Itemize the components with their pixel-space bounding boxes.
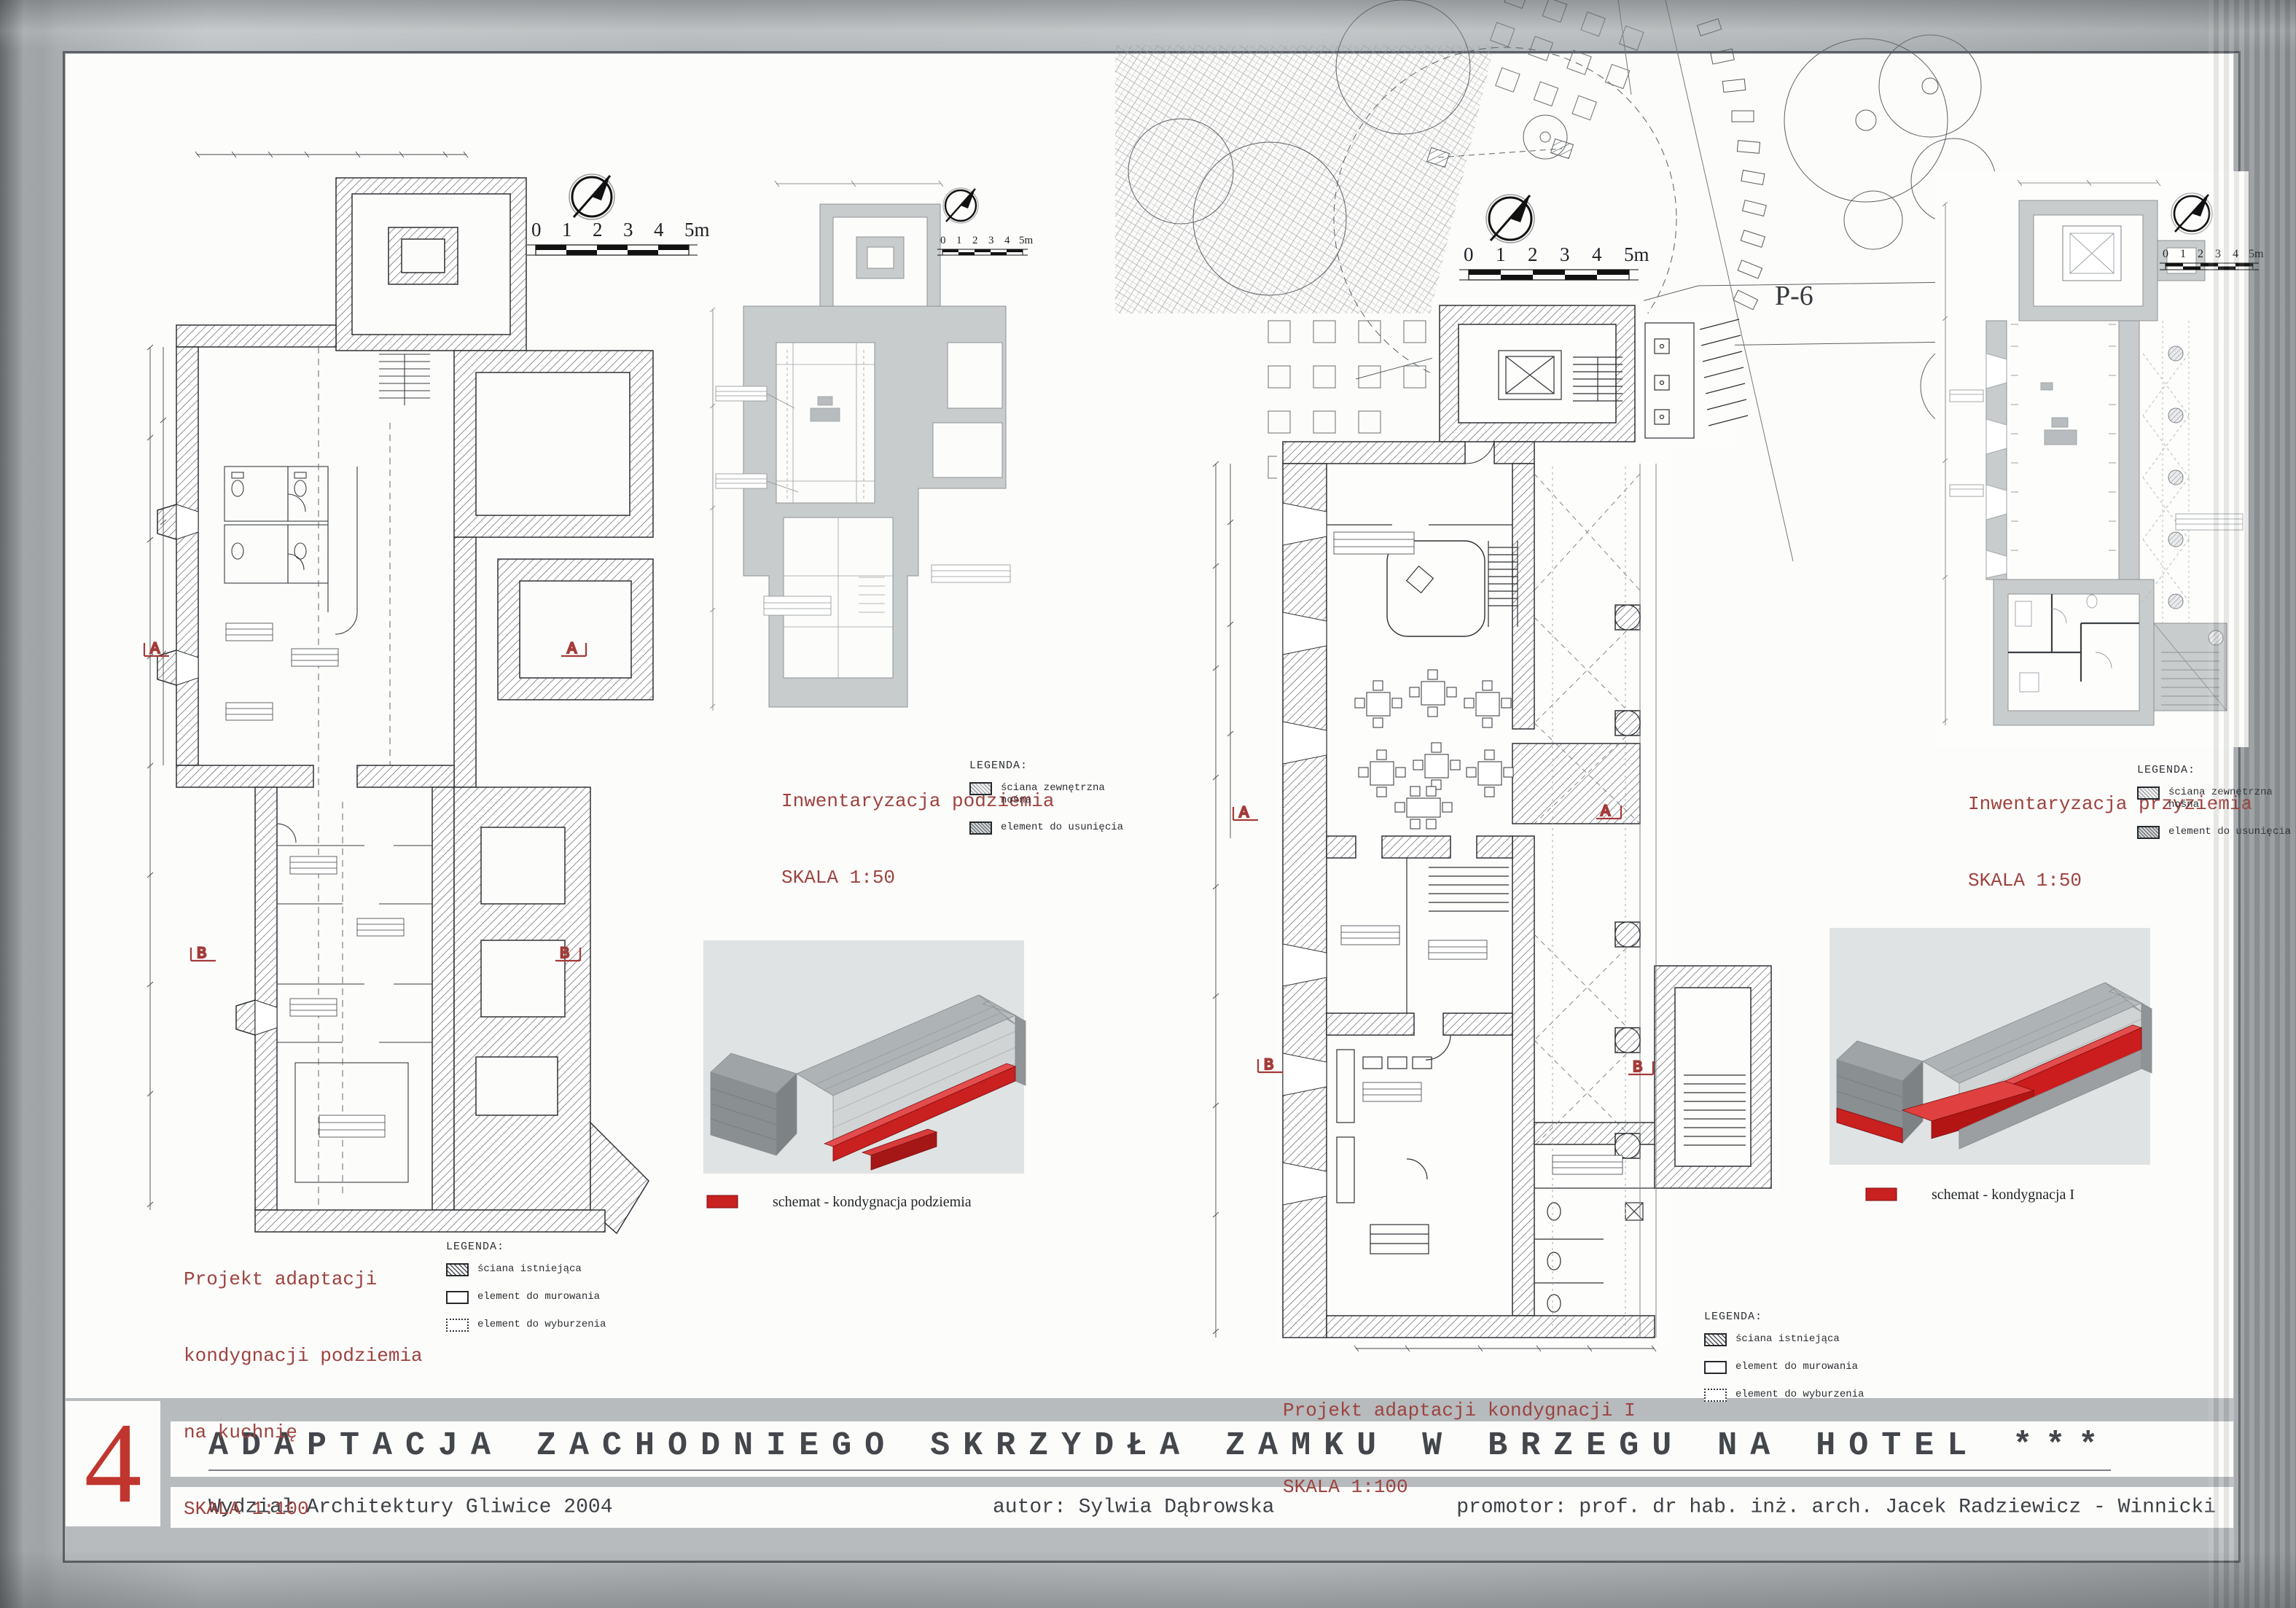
metal-edge-left [0, 0, 44, 1608]
plan-kondygnacja-podziemia: A A B B 0 1 2 3 4 5m [138, 146, 663, 1254]
info-bar: Wydział Architektury Gliwice 2004 autor:… [171, 1487, 2233, 1528]
scale-bar: 0 1 2 3 4 5m [1459, 243, 1649, 280]
svg-text:A: A [1601, 803, 1611, 821]
schematic-podziemia: schemat - kondygnacja podziemia [689, 937, 1039, 1228]
schematic-kondygnacja-1: schemat - kondygnacja I [1815, 924, 2165, 1223]
schematic-caption: schemat - kondygnacja I [1866, 1187, 2074, 1203]
svg-text:A: A [1239, 804, 1249, 822]
board-title: ADAPTACJA ZACHODNIEGO SKRZYDŁA ZAMKU W B… [208, 1427, 2111, 1471]
left-inventory-legend: LEGENDA: ściana zewnętrznanośna element … [969, 760, 1137, 849]
plan-inwentaryzacja-przyziemia: 0 1 2 3 4 5m [1935, 171, 2249, 747]
dotted-swatch [1704, 1389, 1727, 1402]
north-arrow [943, 188, 978, 223]
plan-inwentaryzacja-podziemia: 0 1 2 3 4 5m [700, 168, 1020, 751]
svg-text:3: 3 [623, 219, 633, 241]
svg-text:B: B [1633, 1058, 1642, 1077]
grey-hatch-swatch-2 [969, 821, 992, 835]
title-bar: ADAPTACJA ZACHODNIEGO SKRZYDŁA ZAMKU W B… [171, 1421, 2233, 1477]
right-plan-caption: Projekt adaptacji kondygnacji I SKALA 1:… [1283, 1347, 1636, 1551]
svg-text:0: 0 [2163, 248, 2168, 260]
svg-text:1: 1 [956, 235, 962, 246]
dotted-swatch [446, 1319, 469, 1332]
presentation-board: P-6 0 1 2 3 4 5m [0, 0, 2296, 1608]
outline-swatch [446, 1291, 469, 1304]
svg-text:0: 0 [1464, 243, 1474, 265]
svg-text:2: 2 [972, 235, 978, 246]
svg-text:schemat - kondygnacja I: schemat - kondygnacja I [1932, 1187, 2074, 1203]
metal-edge-right [2209, 0, 2296, 1608]
room-label-box [226, 623, 273, 641]
svg-text:3: 3 [988, 235, 994, 246]
north-arrow [1486, 195, 1534, 243]
schematic-caption: schemat - kondygnacja podziemia [707, 1194, 972, 1210]
hatch-swatch [446, 1263, 469, 1276]
svg-text:5m: 5m [1624, 243, 1649, 265]
legend-heading: LEGENDA: [969, 760, 1137, 772]
north-arrow [569, 174, 614, 219]
grey-hatch-swatch [2137, 787, 2160, 800]
hatch-swatch [1704, 1333, 1727, 1346]
svg-text:3: 3 [1560, 243, 1570, 265]
svg-text:schemat - kondygnacja podziemi: schemat - kondygnacja podziemia [773, 1194, 972, 1210]
svg-text:1: 1 [562, 219, 572, 241]
svg-text:5m: 5m [1019, 235, 1034, 246]
plate-number-panel: 4 [66, 1401, 160, 1526]
svg-text:1: 1 [1496, 243, 1506, 265]
plan-kondygnacja-1: A A B B [1188, 284, 1786, 1363]
svg-text:B: B [1264, 1056, 1273, 1074]
svg-text:4: 4 [1592, 243, 1602, 265]
svg-text:B: B [197, 945, 206, 963]
svg-text:0: 0 [531, 219, 542, 241]
svg-text:B: B [560, 945, 569, 963]
right-plan-legend: LEGENDA: ściana istniejąca element do mu… [1704, 1311, 1901, 1416]
legend-heading: LEGENDA: [446, 1241, 643, 1253]
legend-heading: LEGENDA: [1704, 1311, 1901, 1323]
svg-text:4: 4 [654, 219, 664, 241]
svg-text:2: 2 [1528, 243, 1538, 265]
svg-text:A: A [567, 640, 577, 658]
svg-text:0: 0 [940, 235, 946, 246]
author-label: autor: Sylwia Dąbrowska [993, 1496, 1274, 1519]
left-plan-legend: LEGENDA: ściana istniejąca element do mu… [446, 1241, 643, 1346]
grey-hatch-swatch [969, 782, 992, 795]
scale-bar: 0 1 2 3 4 5m [937, 235, 1034, 255]
svg-text:A: A [150, 640, 160, 658]
svg-text:2: 2 [2198, 248, 2203, 260]
svg-text:2: 2 [593, 219, 603, 241]
svg-text:1: 1 [2180, 248, 2186, 260]
grey-hatch-swatch-2 [2137, 826, 2160, 839]
plate-number: 4 [85, 1406, 142, 1521]
outline-swatch [1704, 1361, 1727, 1374]
svg-text:4: 4 [1004, 235, 1010, 246]
left-plan-caption: Projekt adaptacji kondygnacji podziemia … [184, 1216, 423, 1573]
